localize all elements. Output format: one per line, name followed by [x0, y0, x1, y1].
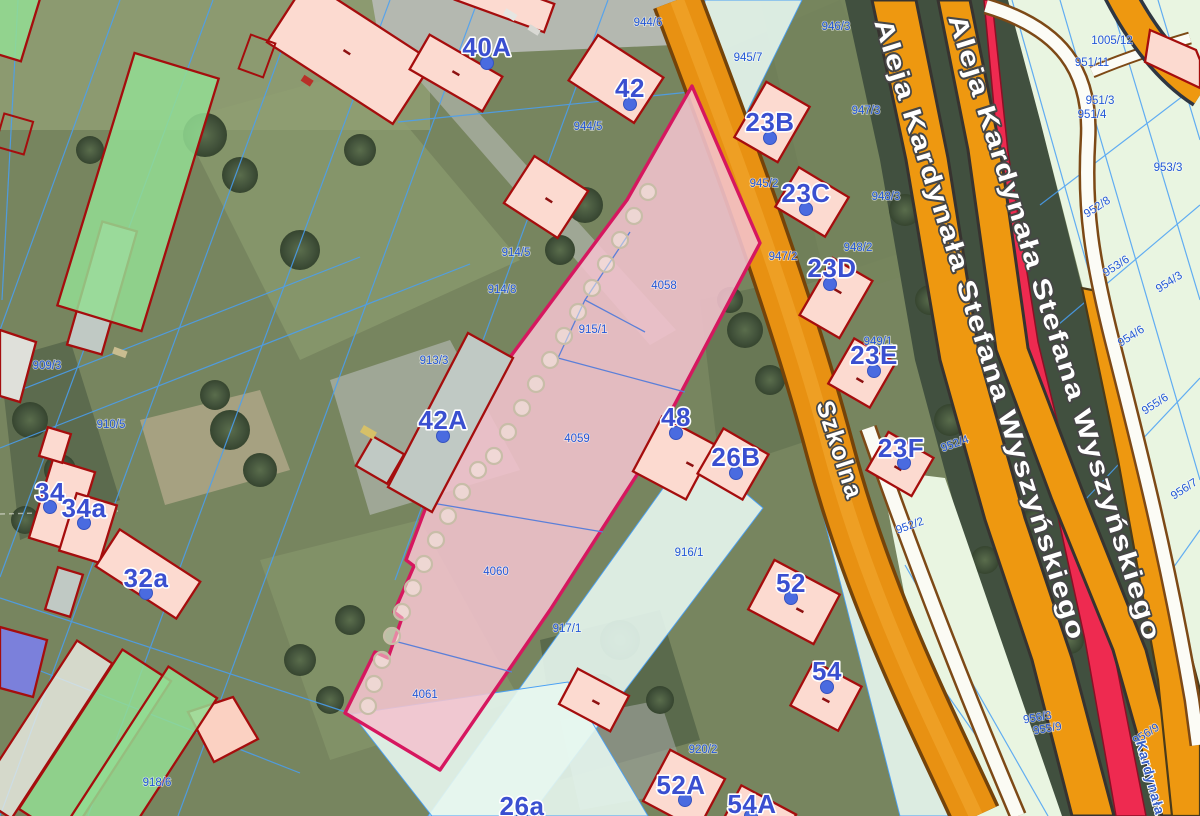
address-label-23e: 23E: [850, 340, 898, 370]
map-viewport[interactable]: 944/6 944/5 945/7 945/2 946/3 947/3 947/…: [0, 0, 1200, 816]
parcel-number-label: 916/1: [675, 547, 704, 559]
address-label-48: 48: [661, 402, 691, 432]
address-label-42: 42: [615, 73, 645, 103]
parcel-number-label: 910/5: [97, 419, 126, 431]
address-label-34a: 34a: [62, 493, 107, 523]
parcel-number-label: 947/3: [852, 105, 881, 117]
address-label-26a: 26a: [500, 791, 545, 816]
address-label-23b: 23B: [745, 107, 794, 137]
parcel-number-label: 914/5: [502, 247, 531, 259]
parcel-number-label: 951/4: [1078, 109, 1107, 121]
map-canvas[interactable]: 944/6 944/5 945/7 945/2 946/3 947/3 947/…: [0, 0, 1200, 816]
parcel-number-label: 909/3: [33, 360, 62, 372]
address-label-54: 54: [812, 656, 842, 686]
parcel-number-label: 914/8: [488, 284, 517, 296]
parcel-number-label: 920/2: [689, 744, 718, 756]
parcel-number-label: 948/3: [872, 191, 901, 203]
parcel-number-label: 4059: [564, 433, 590, 445]
parcel-number-label: 915/1: [579, 324, 608, 336]
parcel-number-label: 4058: [651, 280, 677, 292]
parcel-number-label: 953/3: [1154, 162, 1183, 174]
parcel-number-label: 4060: [483, 566, 509, 578]
parcel-number-label: 1005/12: [1091, 35, 1133, 47]
parcel-number-label: 951/11: [1075, 57, 1109, 69]
parcel-number-label: 951/3: [1086, 95, 1115, 107]
address-label-23f: 23F: [878, 433, 924, 463]
address-label-42a: 42A: [418, 405, 467, 435]
parcel-number-label: 918/6: [143, 777, 172, 789]
parcel-number-label: 947/2: [769, 251, 798, 263]
parcel-number-label: 913/3: [420, 355, 449, 367]
parcel-number-label: 944/5: [574, 121, 603, 133]
parcel-number-label: 944/6: [634, 17, 663, 29]
address-label-34: 34: [35, 477, 65, 507]
address-label-32a: 32a: [124, 563, 169, 593]
address-label-26b: 26B: [711, 442, 760, 472]
parcel-number-label: 946/3: [822, 21, 851, 33]
parcel-number-label: 4061: [412, 689, 438, 701]
address-label-54a: 54A: [727, 789, 776, 816]
address-label-23d: 23D: [807, 253, 856, 283]
address-label-52: 52: [776, 568, 806, 598]
address-label-23c: 23C: [781, 178, 830, 208]
parcel-number-label: 917/1: [553, 623, 582, 635]
address-label-40a: 40A: [462, 32, 511, 62]
parcel-number-label: 945/2: [750, 178, 779, 190]
parcel-number-label: 945/7: [734, 52, 763, 64]
address-label-52a: 52A: [656, 770, 705, 800]
